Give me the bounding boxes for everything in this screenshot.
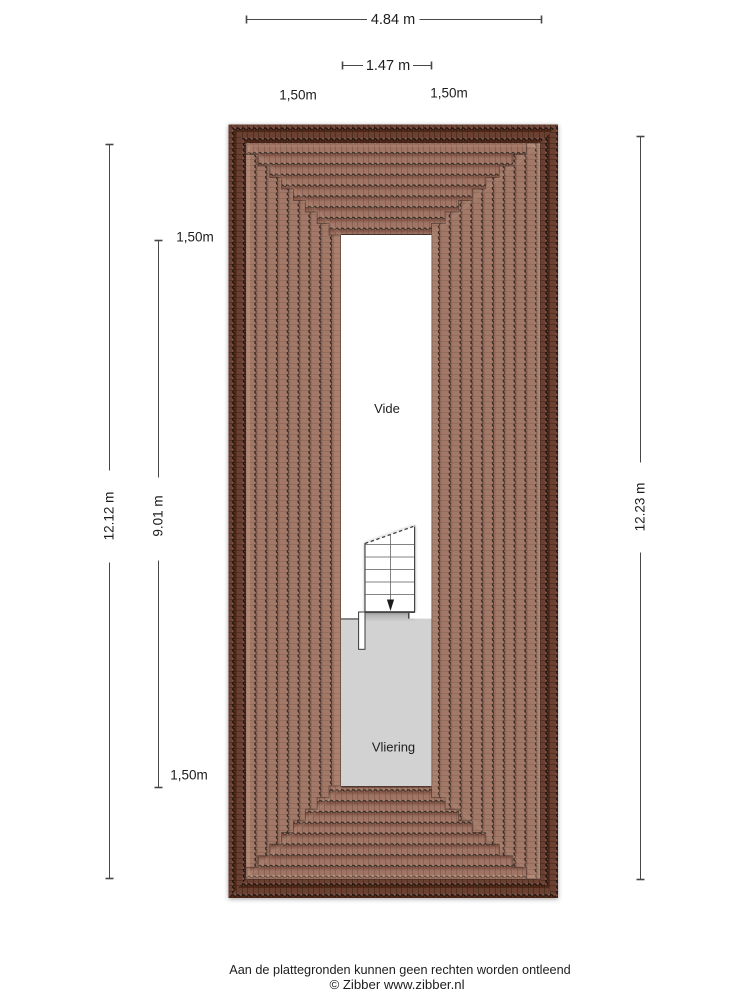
svg-text:1,50m: 1,50m: [176, 230, 214, 245]
svg-text:12.12 m: 12.12 m: [102, 492, 117, 541]
svg-text:9.01 m: 9.01 m: [151, 495, 166, 536]
svg-text:1.47 m: 1.47 m: [366, 58, 410, 74]
svg-text:1,50m: 1,50m: [279, 88, 317, 103]
svg-text:1,50m: 1,50m: [170, 768, 208, 783]
svg-text:1,50m: 1,50m: [430, 86, 468, 101]
svg-text:12.23 m: 12.23 m: [633, 483, 648, 532]
svg-text:© Zibber www.zibber.nl: © Zibber www.zibber.nl: [329, 977, 464, 992]
svg-text:Aan de plattegronden kunnen ge: Aan de plattegronden kunnen geen rechten…: [229, 963, 570, 977]
svg-text:Vide: Vide: [374, 401, 400, 416]
svg-text:4.84 m: 4.84 m: [371, 12, 415, 28]
svg-text:Vliering: Vliering: [372, 740, 415, 755]
